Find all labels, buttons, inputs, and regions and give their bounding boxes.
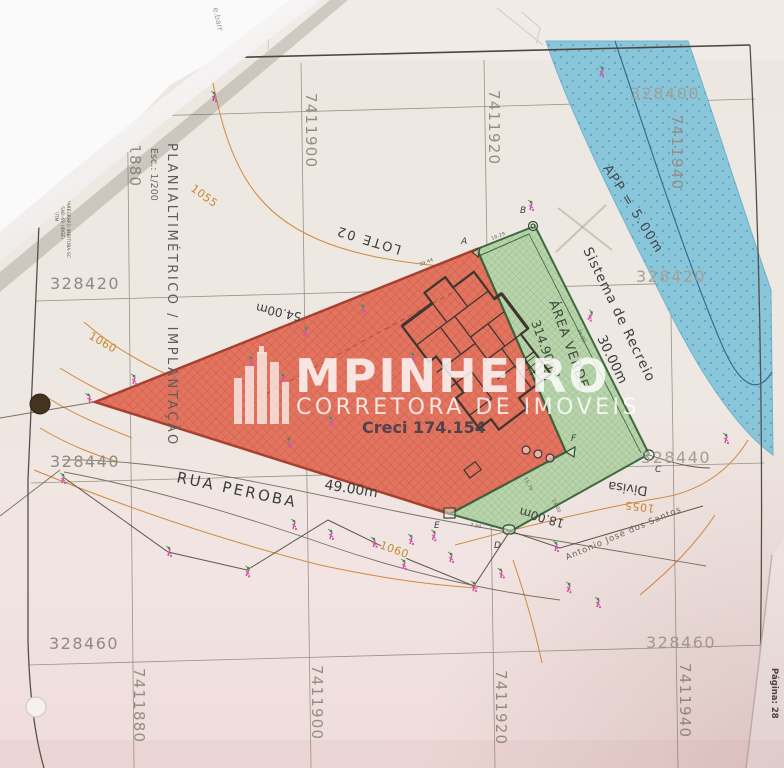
northing-label-top-4: 7411940 [668,115,686,190]
easting-label-right-2: 328420 [636,267,706,286]
plan-canvas: 328400 328420 328440 328460 328400 32842… [0,0,784,768]
hole-punch-bottom [26,697,46,717]
survey-plan-photo: 328400 328420 328440 328460 328400 32842… [0,0,784,768]
corner-letter-b: B [520,206,526,216]
plan-title: PLANIALTIMÉTRICO / IMPLANTAÇÃO [164,143,180,447]
northing-label-top-3: 7411920 [485,90,503,165]
easting-label-left-3: 328440 [50,452,120,471]
easting-label-left-4: 328460 [49,634,119,653]
easting-label-left-2: 328420 [50,274,120,293]
corner-shadow-overlay [384,368,784,768]
bottom-tint [0,740,784,768]
hole-punch-top [30,394,50,414]
corner-letter-a: A [460,237,467,247]
easting-label-right-1: 328400 [630,84,700,103]
northing-label-bottom-2: 7411900 [308,665,326,740]
northing-label-bottom-1: 7411880 [130,668,148,743]
northing-label-top-2: 7411900 [302,93,320,168]
